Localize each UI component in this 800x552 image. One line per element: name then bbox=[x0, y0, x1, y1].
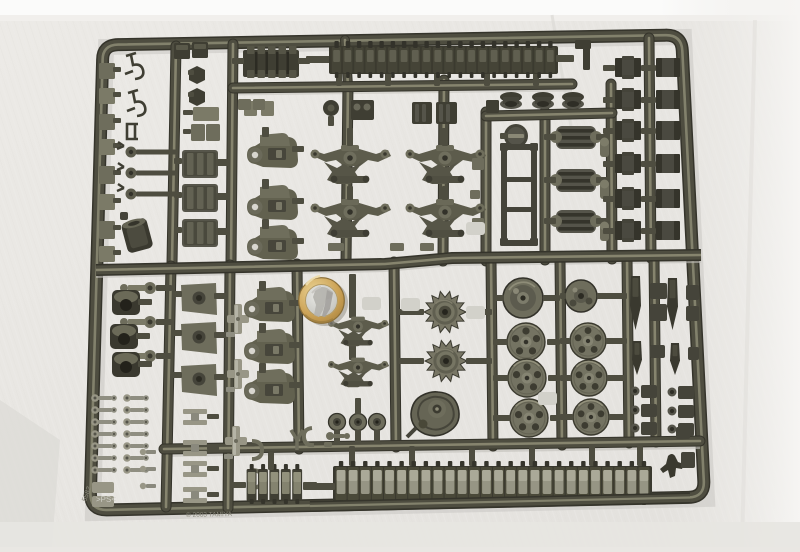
svg-text:>PS<: >PS< bbox=[96, 495, 116, 504]
svg-text:© 2003 TAMIYA: © 2003 TAMIYA bbox=[186, 510, 233, 519]
